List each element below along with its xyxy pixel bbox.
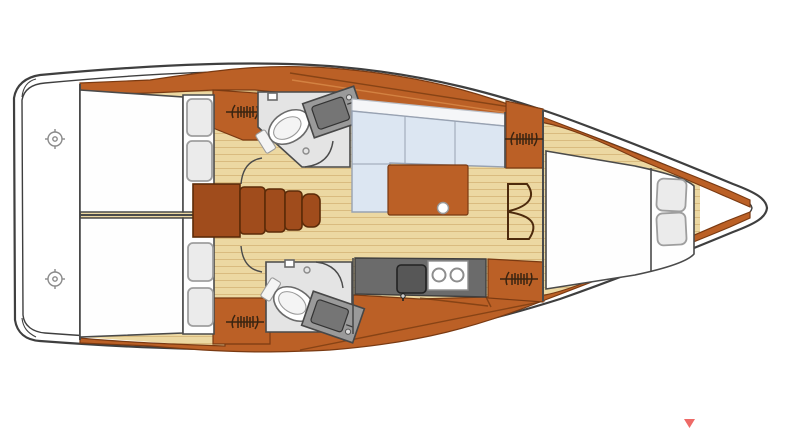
page-marker-triangle <box>684 419 695 428</box>
yacht-floor-plan <box>0 0 800 446</box>
shelf <box>285 260 294 267</box>
companionway <box>193 184 320 237</box>
stove-burners-icon <box>433 269 446 282</box>
step <box>302 194 320 227</box>
pillow <box>656 212 687 245</box>
salon-table <box>388 165 468 215</box>
pillow <box>187 141 212 181</box>
aft-bed-port <box>80 218 183 337</box>
table-post <box>438 203 449 214</box>
step <box>285 191 302 230</box>
pillow <box>188 243 213 281</box>
engine-box <box>193 184 240 237</box>
galley-sink <box>397 265 426 293</box>
shelf <box>268 93 277 100</box>
head-aft <box>258 260 364 343</box>
pillow <box>656 178 687 211</box>
galley-faucet-knob <box>401 294 405 298</box>
floor-plan-svg <box>0 0 800 446</box>
pillow <box>187 99 212 136</box>
fwd-bulkhead-wood-top <box>506 101 543 168</box>
stove-burners-icon <box>451 269 464 282</box>
pillow <box>188 288 213 326</box>
step <box>265 189 285 232</box>
aft-bed-starboard <box>80 90 183 212</box>
step <box>240 187 265 234</box>
